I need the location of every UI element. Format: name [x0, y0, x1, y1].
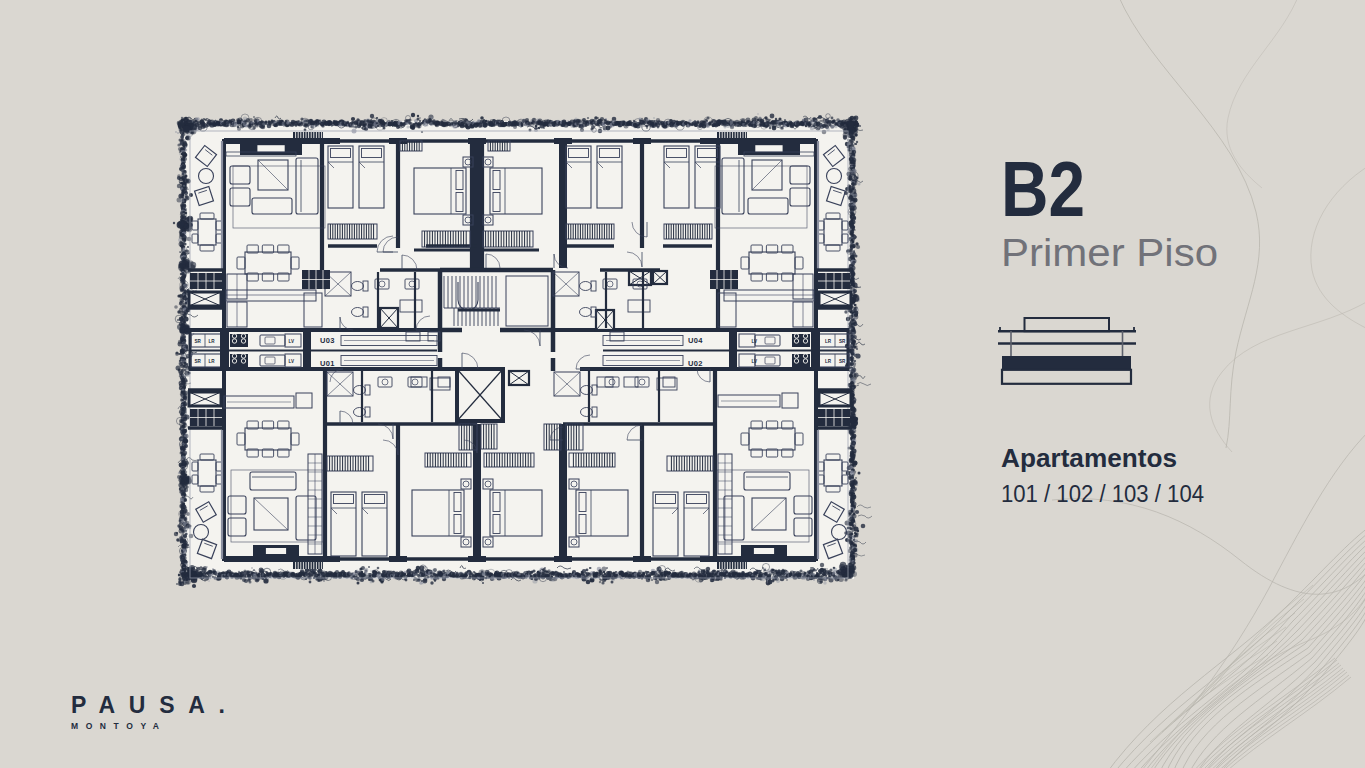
svg-text:LR: LR — [825, 339, 832, 344]
svg-text:LR: LR — [209, 359, 216, 364]
svg-text:Primer Piso: Primer Piso — [1001, 232, 1218, 274]
svg-text:LR: LR — [825, 359, 832, 364]
svg-text:B2: B2 — [1001, 145, 1085, 233]
svg-text:SR: SR — [839, 339, 846, 344]
svg-text:SR: SR — [195, 339, 202, 344]
svg-text:SR: SR — [839, 359, 846, 364]
svg-text:U02: U02 — [688, 359, 703, 368]
svg-text:U03: U03 — [320, 336, 335, 345]
svg-text:LV: LV — [289, 339, 295, 344]
svg-text:U04: U04 — [688, 336, 703, 345]
svg-text:LV: LV — [752, 339, 758, 344]
svg-text:101 / 102 / 103 / 104: 101 / 102 / 103 / 104 — [1001, 481, 1204, 507]
svg-text:SR: SR — [195, 359, 202, 364]
svg-text:Apartamentos: Apartamentos — [1001, 444, 1177, 472]
svg-text:U01: U01 — [320, 359, 335, 368]
svg-text:LV: LV — [289, 359, 295, 364]
svg-text:LR: LR — [209, 339, 216, 344]
svg-text:LV: LV — [752, 359, 758, 364]
